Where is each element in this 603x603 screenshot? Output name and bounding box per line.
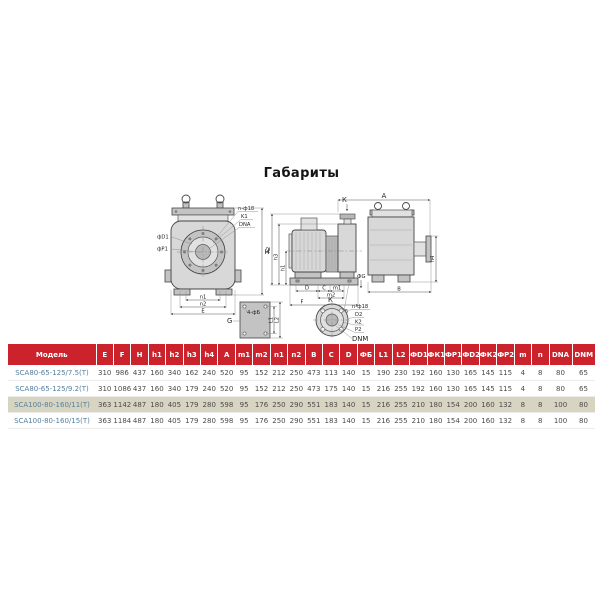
dimension-cell: 176 (253, 397, 270, 413)
dimension-cell: 290 (288, 413, 305, 429)
dimension-cell: 15 (357, 397, 374, 413)
dim-label-d2: D2 (355, 312, 362, 318)
dimension-cell: 1184 (113, 413, 130, 429)
dimension-cell: 487 (131, 397, 148, 413)
dimension-cell: 152 (253, 365, 270, 381)
column-header-4: h1 (148, 344, 165, 365)
column-header-26: n (532, 344, 549, 365)
dimension-cell: 340 (166, 365, 183, 381)
column-header-1: Е (96, 344, 113, 365)
dimension-cell: 210 (410, 397, 427, 413)
dimension-cell: 212 (270, 365, 287, 381)
dimension-cell: 180 (427, 397, 444, 413)
dimension-cell: 190 (375, 365, 392, 381)
column-header-12: n2 (288, 344, 305, 365)
dimension-cell: 180 (148, 397, 165, 413)
dimension-cell: 95 (235, 365, 252, 381)
dimension-cell: 200 (462, 413, 479, 429)
dimension-cell: 140 (340, 413, 357, 429)
dimension-cell: 130 (444, 365, 461, 381)
column-header-15: D (340, 344, 357, 365)
dimension-cell: 80 (549, 381, 572, 397)
dimension-cell: 216 (375, 397, 392, 413)
dimension-cell: 145 (479, 381, 496, 397)
dimension-cell: 8 (532, 413, 549, 429)
dimension-cell: 290 (288, 397, 305, 413)
dimension-cell: 240 (201, 381, 218, 397)
dimension-cell: 95 (235, 413, 252, 429)
page: Габариты (0, 0, 603, 603)
column-header-28: DNM (572, 344, 595, 365)
dimensions-table: МодельЕFHh1h2h3h4Am1m2n1n2BCDФБL1L2ФD1ФК… (8, 344, 595, 429)
dimension-cell: 179 (183, 413, 200, 429)
dim-label-n1: n1 (200, 295, 207, 301)
dimension-cell: 145 (479, 365, 496, 381)
model-link[interactable]: SCA80-65-125/9.2(T) (8, 381, 96, 397)
dimension-cell: 200 (462, 397, 479, 413)
table-header-row: МодельЕFHh1h2h3h4Am1m2n1n2BCDФБL1L2ФD1ФК… (8, 344, 595, 365)
dimension-cell: 179 (183, 381, 200, 397)
dimension-cell: 363 (96, 413, 113, 429)
dimension-cell: 180 (148, 413, 165, 429)
dimension-cell: 250 (270, 413, 287, 429)
dimension-cell: 160 (427, 365, 444, 381)
dimension-cell: 165 (462, 365, 479, 381)
dimension-cell: 192 (410, 381, 427, 397)
column-header-21: ФР1 (444, 344, 461, 365)
column-header-17: L1 (375, 344, 392, 365)
dimension-cell: 8 (514, 413, 531, 429)
dimension-cell: 183 (322, 397, 339, 413)
dimension-cell: 130 (444, 381, 461, 397)
dimension-cell: 210 (410, 413, 427, 429)
dimension-cell: 15 (357, 381, 374, 397)
dim-label-l2: L2 (275, 317, 281, 323)
dim-label-h1: h1 (281, 265, 287, 272)
dimension-cell: 4 (514, 365, 531, 381)
dimension-cell: 165 (462, 381, 479, 397)
dimension-cell: 212 (270, 381, 287, 397)
dim-label-fd1: фD1 (157, 235, 169, 241)
dimension-cell: 160 (148, 381, 165, 397)
dimension-cell: 113 (322, 365, 339, 381)
dimension-cell: 183 (322, 413, 339, 429)
dimensions-drawing: фD1 фР1 n-ф18 K1 DNA H (0, 150, 603, 350)
dimension-cell: 80 (549, 365, 572, 381)
dimension-cell: 520 (218, 365, 235, 381)
dim-label-m1: m1 (333, 286, 341, 292)
dim-label-b: B (397, 287, 401, 293)
dim-label-a: A (382, 192, 387, 200)
dimension-cell: 255 (392, 413, 409, 429)
dimension-cell: 160 (479, 397, 496, 413)
dimension-cell: 598 (218, 397, 235, 413)
dimension-cell: 986 (113, 365, 130, 381)
dim-label-h3: h3 (274, 254, 280, 261)
dimension-cell: 95 (235, 397, 252, 413)
column-header-10: m2 (253, 344, 270, 365)
dim-label-p2: P2 (355, 327, 361, 333)
column-header-23: ФК2 (479, 344, 496, 365)
dim-label-fp1: фР1 (157, 247, 168, 253)
table-row: SCA80-65-125/7.5(T)310986437160340162240… (8, 365, 595, 381)
dimension-cell: 551 (305, 413, 322, 429)
dim-label-dna: DNA (239, 222, 251, 228)
dimension-cell: 100 (549, 397, 572, 413)
side-view: К h2 h3 h1 D C m1 m2 (266, 196, 366, 315)
dimension-cell: 192 (410, 365, 427, 381)
dimension-cell: 132 (497, 397, 514, 413)
dimension-cell: 230 (392, 365, 409, 381)
dimension-cell: 154 (444, 397, 461, 413)
dimension-cell: 340 (166, 381, 183, 397)
column-header-14: C (322, 344, 339, 365)
dimension-cell: 100 (549, 413, 572, 429)
column-header-5: h2 (166, 344, 183, 365)
table-row: SCA80-65-125/9.2(T)310108643716034017924… (8, 381, 595, 397)
dim-label-dnm: DNM (352, 335, 368, 343)
model-link[interactable]: SCA100-80-160/15(T) (8, 413, 96, 429)
table-row: SCA100-80-160/11(T)363114248718040517928… (8, 397, 595, 413)
dimension-cell: 280 (201, 413, 218, 429)
dim-label-k2: K2 (355, 320, 362, 326)
column-header-18: L2 (392, 344, 409, 365)
dimension-cell: 598 (218, 413, 235, 429)
base-plate-detail: 4-фБ G L1 L2 (227, 302, 283, 338)
note-4fb: 4-фБ (247, 310, 261, 316)
dimension-cell: 551 (305, 397, 322, 413)
column-header-27: DNA (549, 344, 572, 365)
dimension-cell: 250 (288, 381, 305, 397)
dimension-cell: 487 (131, 413, 148, 429)
column-header-13: B (305, 344, 322, 365)
dimension-cell: 80 (572, 413, 595, 429)
discharge-flange-detail: К n-ф18 D2 K2 P2 DNM (313, 296, 370, 343)
dimension-cell: 180 (427, 413, 444, 429)
dimension-cell: 405 (166, 413, 183, 429)
dimension-cell: 65 (572, 381, 595, 397)
dimension-cell: 115 (497, 365, 514, 381)
dim-label-f: F (301, 300, 304, 306)
dimension-cell: 250 (270, 397, 287, 413)
dimension-cell: 80 (572, 397, 595, 413)
dimension-cell: 240 (201, 365, 218, 381)
dimension-cell: 140 (340, 397, 357, 413)
dimension-cell: 280 (201, 397, 218, 413)
dimension-cell: 473 (305, 365, 322, 381)
dimension-cell: 1086 (113, 381, 130, 397)
dim-label-n2: n2 (200, 302, 207, 308)
dim-label-c: C (322, 286, 326, 292)
dimension-cell: 8 (532, 365, 549, 381)
dimension-cell: 15 (357, 413, 374, 429)
dim-label-fg: ФG (357, 274, 366, 280)
dim-label-g: G (227, 317, 232, 325)
dimension-cell: 65 (572, 365, 595, 381)
column-header-model: Модель (8, 344, 96, 365)
dimension-cell: 154 (444, 413, 461, 429)
dimension-cell: 115 (497, 381, 514, 397)
dimension-cell: 140 (340, 381, 357, 397)
dimension-cell: 437 (131, 365, 148, 381)
dimension-cell: 310 (96, 365, 113, 381)
dimension-cell: 216 (375, 413, 392, 429)
column-header-16: ФБ (357, 344, 374, 365)
dim-label-front-bolts: n-ф18 (238, 206, 254, 212)
model-link[interactable]: SCA80-65-125/7.5(T) (8, 365, 96, 381)
column-header-22: ФD2 (462, 344, 479, 365)
column-header-19: ФD1 (410, 344, 427, 365)
dimension-cell: 132 (497, 413, 514, 429)
dim-label-k1: K1 (241, 214, 248, 220)
dimension-cell: 175 (322, 381, 339, 397)
dimension-cell: 140 (340, 365, 357, 381)
dim-label-d: D (305, 286, 309, 292)
column-header-24: ФР2 (497, 344, 514, 365)
column-header-2: F (113, 344, 130, 365)
column-header-11: n1 (270, 344, 287, 365)
column-header-3: H (131, 344, 148, 365)
column-header-9: m1 (235, 344, 252, 365)
column-header-6: h3 (183, 344, 200, 365)
dimension-cell: 4 (514, 381, 531, 397)
dimension-cell: 179 (183, 397, 200, 413)
dim-label-flange-bolts: n-ф18 (352, 304, 368, 310)
dim-label-e: Е (201, 309, 204, 315)
column-header-8: A (218, 344, 235, 365)
dimension-cell: 8 (514, 397, 531, 413)
dimension-cell: 162 (183, 365, 200, 381)
dimension-cell: 363 (96, 397, 113, 413)
dimension-cell: 160 (427, 381, 444, 397)
dimension-cell: 437 (131, 381, 148, 397)
column-header-25: m (514, 344, 531, 365)
dimension-cell: 160 (479, 413, 496, 429)
dimension-cell: 176 (253, 413, 270, 429)
dimension-cell: 405 (166, 397, 183, 413)
front-view: фD1 фР1 n-ф18 K1 DNA H (157, 195, 270, 315)
dimension-cell: 255 (392, 381, 409, 397)
column-header-7: h4 (201, 344, 218, 365)
dimension-cell: 473 (305, 381, 322, 397)
dimension-cell: 520 (218, 381, 235, 397)
table-row: SCA100-80-160/15(T)363118448718040517928… (8, 413, 595, 429)
dim-label-h2: h2 (266, 247, 272, 254)
dimension-cell: 255 (392, 397, 409, 413)
dimension-cell: 95 (235, 381, 252, 397)
model-link[interactable]: SCA100-80-160/11(T) (8, 397, 96, 413)
dimension-cell: 216 (375, 381, 392, 397)
dimension-cell: 8 (532, 381, 549, 397)
dimension-cell: 160 (148, 365, 165, 381)
dimension-cell: 250 (288, 365, 305, 381)
dimension-cell: 15 (357, 365, 374, 381)
column-header-20: ФК1 (427, 344, 444, 365)
dimension-cell: 152 (253, 381, 270, 397)
dimension-cell: 8 (532, 397, 549, 413)
dim-label-h4: h4 (430, 255, 436, 262)
dimension-cell: 310 (96, 381, 113, 397)
dimension-cell: 1142 (113, 397, 130, 413)
